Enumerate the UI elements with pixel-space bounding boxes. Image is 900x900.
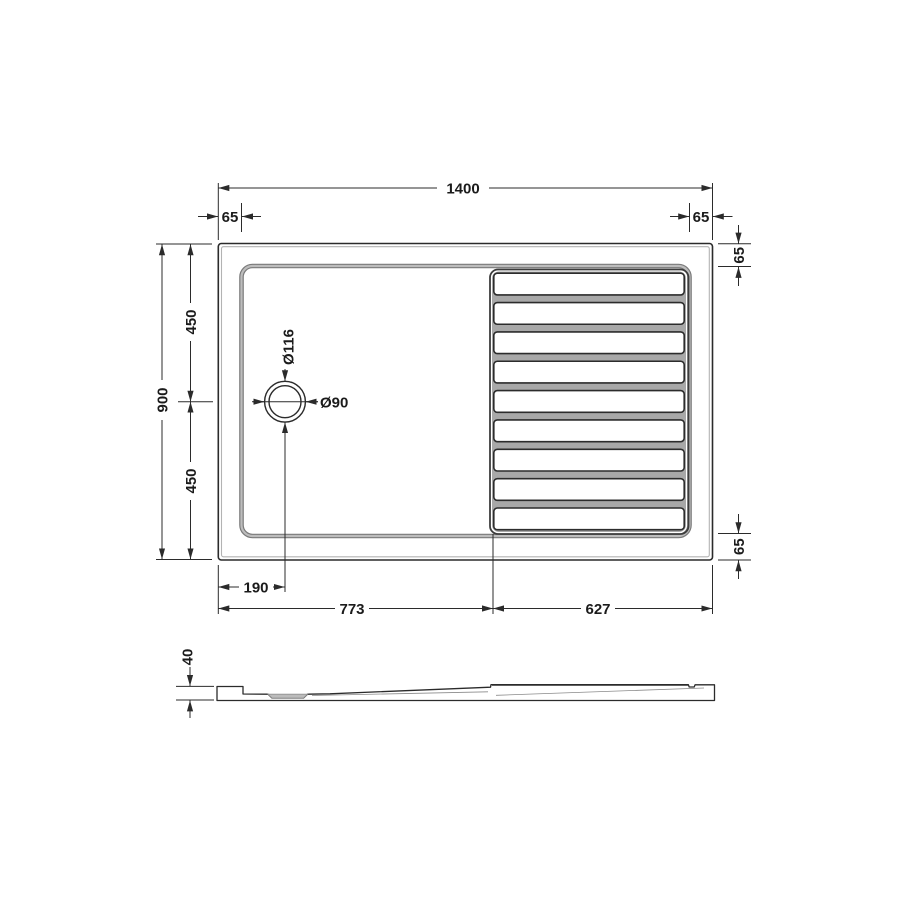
dim-drain-outer-diameter-label: Ø116 (280, 329, 297, 365)
rib-slat-5 (494, 391, 684, 413)
dim-drain-inner-diameter: Ø90 (320, 394, 348, 411)
rib-slat-7 (494, 449, 684, 471)
dim-overall-depth-label: 900 (154, 387, 171, 412)
rib-slat-9 (494, 508, 684, 530)
rib-slat-8 (494, 479, 684, 501)
dim-right-upper-edge: 65 (731, 247, 748, 264)
dim-overall-depth: 900 (154, 380, 171, 420)
rib-slat-2 (494, 303, 684, 325)
dim-upper-half-depth: 450 (183, 303, 200, 341)
technical-drawing: 1400 65 65 900 450 450 65 65 190 (0, 0, 900, 900)
dim-upper-half-depth-label: 450 (183, 309, 200, 334)
side-elevation-view (217, 685, 715, 701)
dim-ribbed-zone-label: 627 (585, 601, 610, 618)
dim-tray-height: 40 (179, 649, 196, 666)
dim-overall-width: 1400 (437, 180, 489, 197)
dim-drain-inner-diameter-label: Ø90 (320, 394, 348, 411)
dim-right-upper-edge-label: 65 (731, 247, 748, 264)
dim-drain-outer-diameter: Ø116 (280, 329, 297, 365)
dim-top-left-edge-label: 65 (222, 209, 239, 226)
dim-smooth-zone: 773 (335, 601, 369, 618)
dim-top-left-edge: 65 (222, 209, 239, 226)
dim-top-right-edge: 65 (693, 209, 710, 226)
profile-drain-recess (268, 694, 308, 698)
dim-drain-offset: 190 (239, 579, 273, 596)
rib-slat-1 (494, 273, 684, 295)
dim-right-lower-edge: 65 (731, 538, 748, 555)
dim-right-lower-edge-label: 65 (731, 538, 748, 555)
dim-top-right-edge-label: 65 (693, 209, 710, 226)
dim-drain-offset-label: 190 (243, 579, 268, 596)
dim-overall-width-label: 1400 (446, 180, 479, 197)
dim-ribbed-zone: 627 (581, 601, 615, 618)
dim-lower-half-depth-label: 450 (183, 468, 200, 493)
rib-slat-4 (494, 361, 684, 383)
rib-slat-3 (494, 332, 684, 354)
drawing-canvas: 1400 65 65 900 450 450 65 65 190 (0, 0, 900, 900)
rib-slats (494, 273, 684, 530)
rib-slat-6 (494, 420, 684, 442)
dim-smooth-zone-label: 773 (339, 601, 364, 618)
dim-lower-half-depth: 450 (183, 462, 200, 500)
dim-tray-height-label: 40 (179, 649, 196, 666)
